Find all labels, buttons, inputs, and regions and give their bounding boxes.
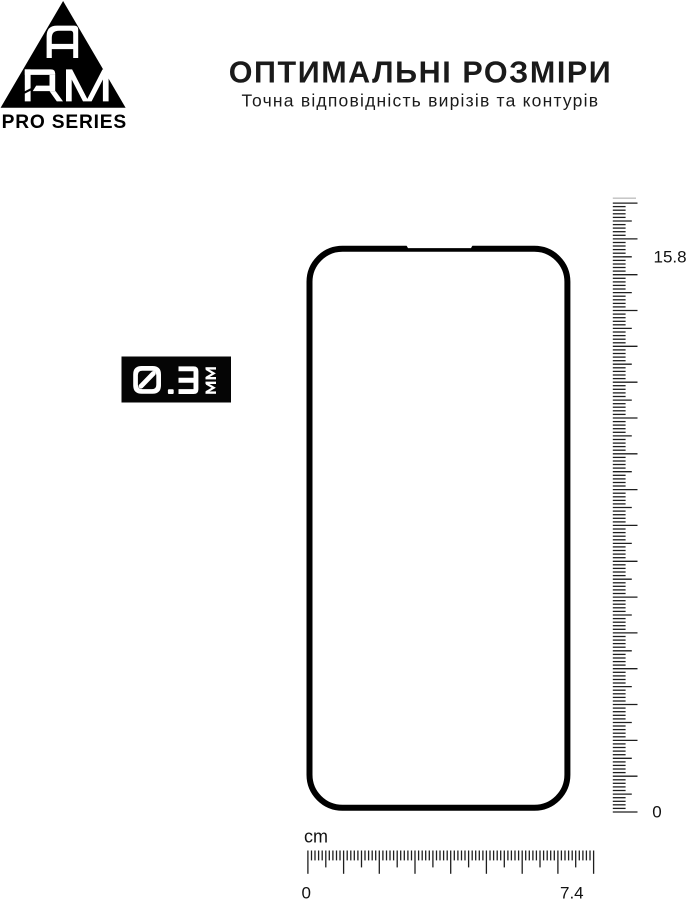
svg-text:7.4: 7.4 — [560, 884, 584, 903]
svg-text:0: 0 — [302, 884, 311, 903]
svg-text:cm: cm — [304, 827, 328, 847]
svg-text:ОПТИМАЛЬНІ РОЗМІРИ: ОПТИМАЛЬНІ РОЗМІРИ — [229, 56, 611, 90]
svg-text:15.8: 15.8 — [654, 248, 687, 267]
svg-text:Точна відповідність вирізів та: Точна відповідність вирізів та контурів — [242, 90, 599, 110]
svg-text:0: 0 — [652, 803, 661, 822]
svg-text:PRO SERIES: PRO SERIES — [2, 112, 127, 133]
